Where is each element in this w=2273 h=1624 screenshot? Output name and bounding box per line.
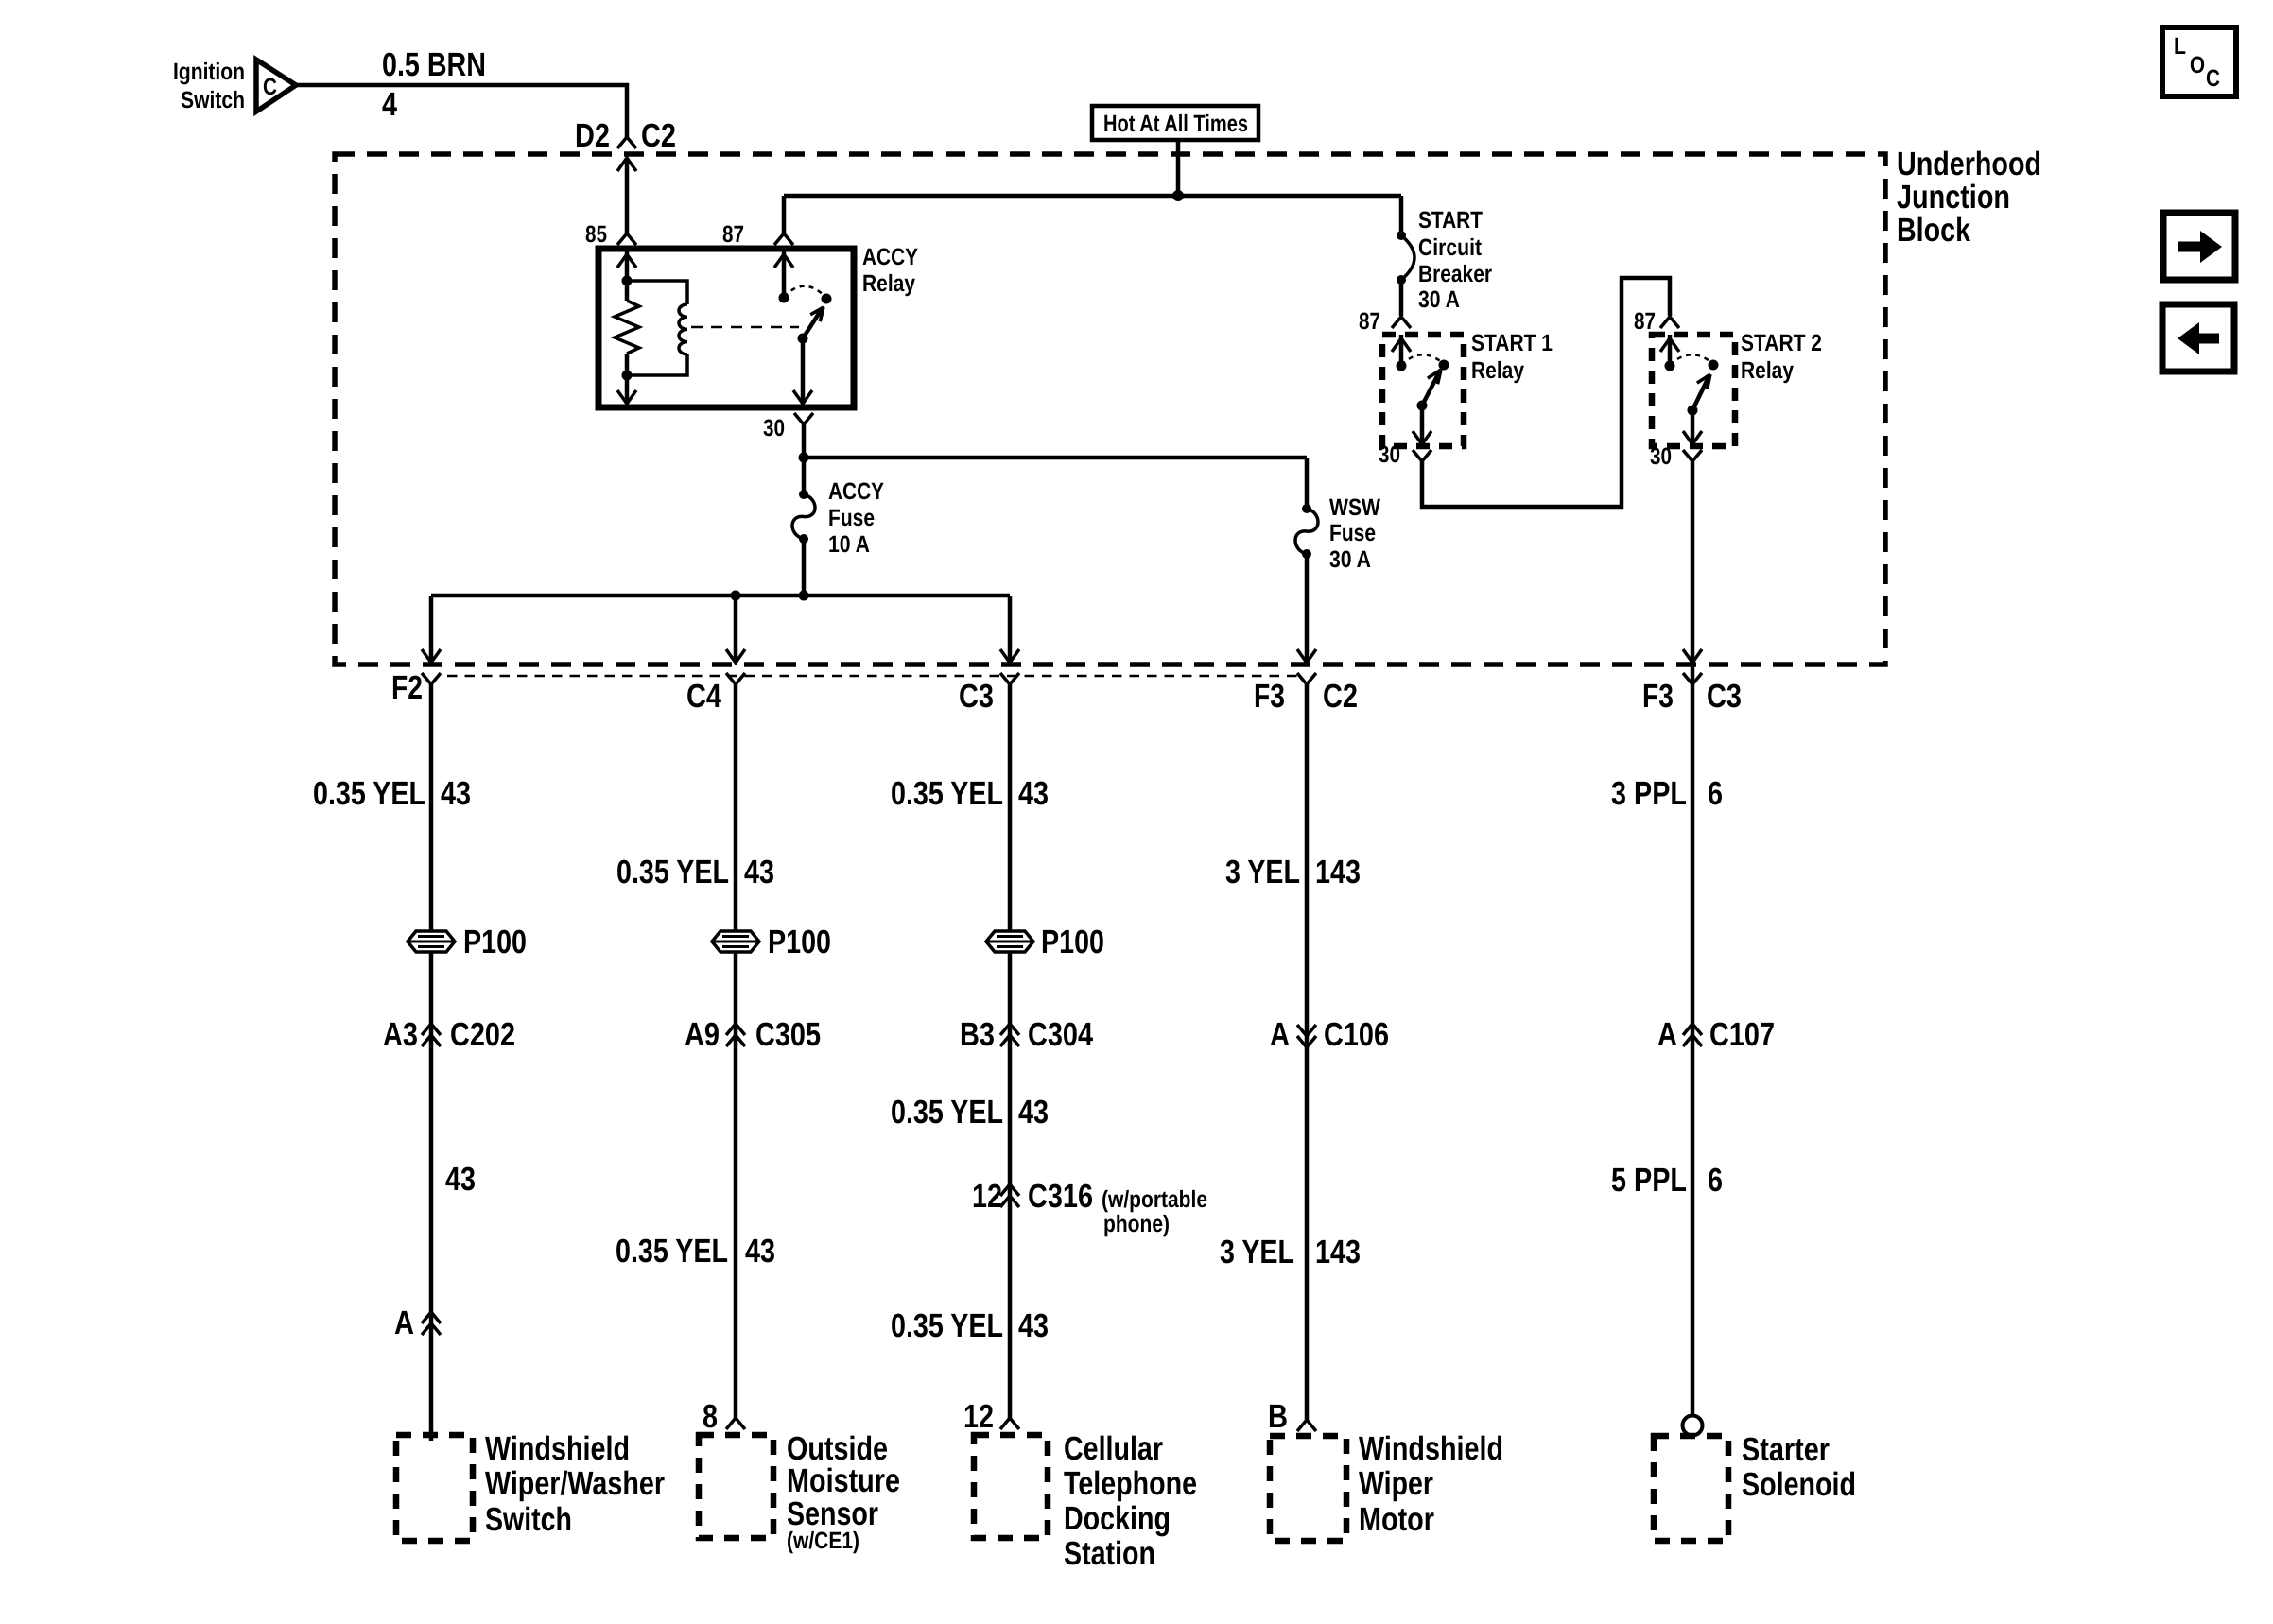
svg-text:Hot At All Times: Hot At All Times [1103, 111, 1248, 137]
svg-text:43: 43 [744, 854, 774, 890]
svg-text:4: 4 [382, 86, 397, 123]
svg-text:Relay: Relay [1471, 357, 1524, 384]
svg-text:5 PPL: 5 PPL [1611, 1162, 1687, 1199]
svg-text:3 YEL: 3 YEL [1225, 854, 1300, 890]
svg-text:F2: F2 [391, 669, 423, 706]
svg-text:C2: C2 [641, 117, 676, 154]
svg-text:WSW: WSW [1329, 494, 1380, 521]
svg-text:Fuse: Fuse [828, 505, 875, 531]
svg-text:143: 143 [1315, 1234, 1361, 1270]
svg-text:START 1: START 1 [1471, 330, 1553, 356]
svg-text:A: A [394, 1304, 414, 1341]
svg-text:A: A [1270, 1016, 1290, 1053]
svg-text:C106: C106 [1324, 1016, 1389, 1053]
svg-text:Junction: Junction [1897, 179, 2010, 216]
svg-text:Breaker: Breaker [1418, 261, 1492, 287]
svg-text:P100: P100 [463, 924, 527, 960]
svg-text:C4: C4 [686, 678, 721, 715]
svg-text:Motor: Motor [1359, 1501, 1434, 1538]
svg-text:ACCY: ACCY [862, 244, 918, 270]
svg-text:D2: D2 [575, 117, 610, 154]
svg-text:0.35 YEL: 0.35 YEL [891, 775, 1003, 812]
svg-text:Windshield: Windshield [1359, 1430, 1503, 1467]
svg-text:Relay: Relay [862, 270, 915, 297]
svg-text:A3: A3 [383, 1016, 418, 1053]
svg-text:C316: C316 [1028, 1178, 1093, 1215]
svg-text:Solenoid: Solenoid [1742, 1466, 1856, 1503]
svg-text:43: 43 [1018, 1307, 1049, 1344]
svg-text:Underhood: Underhood [1897, 146, 2041, 182]
svg-text:C2: C2 [1323, 678, 1358, 715]
svg-text:Moisture: Moisture [787, 1462, 900, 1499]
svg-text:43: 43 [1018, 775, 1049, 812]
svg-text:Docking: Docking [1064, 1500, 1171, 1537]
svg-text:Switch: Switch [485, 1501, 572, 1538]
svg-text:START: START [1418, 207, 1483, 233]
svg-text:C: C [263, 74, 277, 100]
svg-text:Station: Station [1064, 1535, 1155, 1572]
svg-text:43: 43 [1018, 1094, 1049, 1131]
svg-text:0.35 YEL: 0.35 YEL [891, 1094, 1003, 1131]
svg-text:0.35 YEL: 0.35 YEL [313, 775, 425, 812]
svg-text:C3: C3 [1707, 678, 1742, 715]
svg-text:12: 12 [963, 1398, 994, 1435]
svg-text:Circuit: Circuit [1418, 234, 1483, 261]
svg-text:Wiper/Washer: Wiper/Washer [485, 1465, 665, 1502]
svg-text:A9: A9 [685, 1016, 720, 1053]
svg-text:Fuse: Fuse [1329, 520, 1376, 546]
svg-text:30 A: 30 A [1418, 286, 1460, 313]
svg-text:10 A: 10 A [828, 531, 870, 558]
svg-text:87: 87 [1359, 308, 1380, 335]
svg-text:87: 87 [1634, 308, 1656, 335]
svg-text:P100: P100 [768, 924, 831, 960]
svg-text:30: 30 [1379, 441, 1400, 468]
svg-text:Switch: Switch [181, 87, 245, 113]
svg-text:phone): phone) [1103, 1211, 1170, 1237]
svg-text:0.35 YEL: 0.35 YEL [616, 1233, 728, 1270]
svg-text:85: 85 [585, 221, 607, 248]
svg-text:START 2: START 2 [1741, 330, 1822, 356]
svg-text:8: 8 [703, 1398, 718, 1435]
svg-text:B: B [1268, 1398, 1288, 1435]
svg-text:Relay: Relay [1741, 357, 1794, 384]
svg-text:C304: C304 [1028, 1016, 1093, 1053]
svg-text:0.35 YEL: 0.35 YEL [616, 854, 729, 890]
svg-text:6: 6 [1708, 775, 1723, 812]
svg-text:30: 30 [763, 415, 785, 441]
svg-text:Windshield: Windshield [485, 1430, 630, 1467]
svg-text:C202: C202 [450, 1016, 515, 1053]
svg-text:F3: F3 [1642, 678, 1674, 715]
svg-text:87: 87 [722, 221, 744, 248]
svg-text:C305: C305 [755, 1016, 821, 1053]
svg-text:L: L [2174, 33, 2186, 60]
svg-text:30: 30 [1650, 443, 1672, 470]
svg-text:0.5 BRN: 0.5 BRN [382, 46, 486, 83]
svg-text:F3: F3 [1254, 678, 1285, 715]
svg-text:Block: Block [1897, 212, 1970, 249]
svg-text:P100: P100 [1041, 924, 1104, 960]
svg-text:(w/CE1): (w/CE1) [787, 1528, 859, 1554]
svg-text:B3: B3 [960, 1016, 995, 1053]
svg-text:C107: C107 [1709, 1016, 1775, 1053]
svg-text:43: 43 [441, 775, 471, 812]
svg-text:C3: C3 [959, 678, 994, 715]
svg-text:12: 12 [972, 1178, 1002, 1215]
svg-text:Starter: Starter [1742, 1431, 1830, 1468]
svg-text:Ignition: Ignition [173, 59, 245, 85]
svg-text:30 A: 30 A [1329, 546, 1371, 573]
svg-text:43: 43 [745, 1233, 775, 1270]
svg-text:Wiper: Wiper [1359, 1465, 1433, 1502]
svg-text:Cellular: Cellular [1064, 1430, 1163, 1467]
svg-text:ACCY: ACCY [828, 478, 884, 505]
svg-text:Telephone: Telephone [1064, 1465, 1197, 1502]
svg-text:43: 43 [445, 1161, 476, 1198]
svg-text:3 YEL: 3 YEL [1220, 1234, 1294, 1270]
svg-text:A: A [1657, 1016, 1677, 1053]
svg-text:3 PPL: 3 PPL [1611, 775, 1687, 812]
svg-text:0.35 YEL: 0.35 YEL [891, 1307, 1003, 1344]
svg-text:(w/portable: (w/portable [1102, 1186, 1207, 1213]
svg-text:O: O [2190, 52, 2205, 78]
svg-text:6: 6 [1708, 1162, 1723, 1199]
svg-text:C: C [2206, 65, 2220, 92]
svg-text:143: 143 [1315, 854, 1361, 890]
